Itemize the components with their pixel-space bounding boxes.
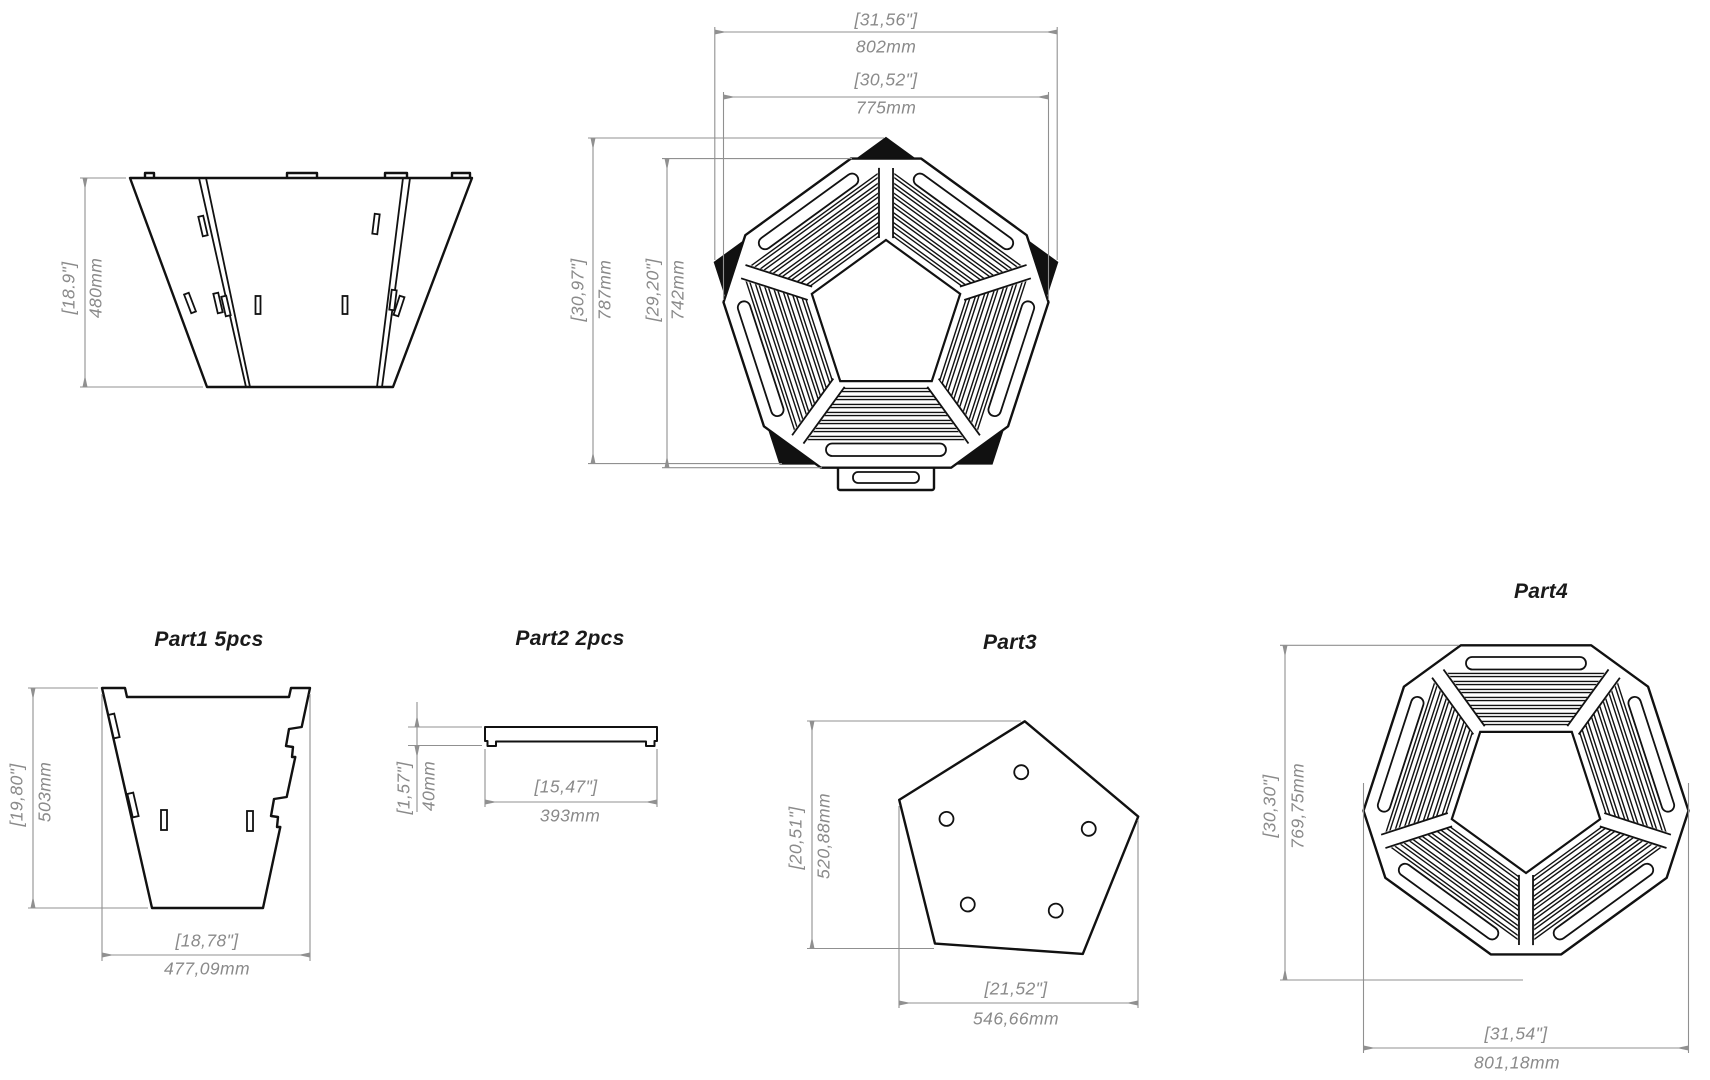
dim-topview-outer-width-inch: [31,56"] xyxy=(855,10,918,31)
dim-part4-height-mm: 769,75mm xyxy=(1288,763,1309,849)
part1-drawing xyxy=(102,688,310,908)
part2-label: Part2 2pcs xyxy=(515,627,624,651)
dim-sideview-height-mm: 480mm xyxy=(86,258,107,318)
dim-part2-height-mm: 40mm xyxy=(419,761,440,811)
technical-drawing-sheet: [31,56"] 802mm [30,52"] 775mm [30,97"] 7… xyxy=(0,0,1710,1080)
dim-topview-inner-width-inch: [30,52"] xyxy=(855,70,918,91)
part4-label: Part4 xyxy=(1514,580,1568,604)
dim-part3-width-inch: [21,52"] xyxy=(985,979,1048,1000)
dim-part4-width-inch: [31,54"] xyxy=(1485,1024,1548,1045)
dim-topview-inner-height-mm: 742mm xyxy=(668,260,689,320)
dim-part2-width-inch: [15,47"] xyxy=(535,777,598,798)
dim-part3-height-mm: 520,88mm xyxy=(814,793,835,879)
dim-part4-width-mm: 801,18mm xyxy=(1474,1053,1560,1074)
dim-sideview-height-inch: [18.9"] xyxy=(59,262,80,315)
part4-drawing xyxy=(1364,645,1689,962)
part3-label: Part3 xyxy=(983,631,1037,655)
side-view-drawing xyxy=(130,173,472,387)
dim-part1-height-mm: 503mm xyxy=(35,762,56,822)
dim-part1-height-inch: [19,80"] xyxy=(7,764,28,827)
dim-topview-outer-height-inch: [30,97"] xyxy=(568,259,589,322)
part3-drawing xyxy=(889,713,1144,957)
part1-label: Part1 5pcs xyxy=(154,628,263,652)
dim-part1-width-inch: [18,78"] xyxy=(176,931,239,952)
dim-part1-width-mm: 477,09mm xyxy=(164,959,250,980)
part2-drawing xyxy=(485,727,657,746)
dim-part2-width-mm: 393mm xyxy=(540,806,600,827)
dim-part3-width-mm: 546,66mm xyxy=(973,1009,1059,1030)
dim-part2-height-inch: [1,57"] xyxy=(394,762,415,815)
drawing-canvas xyxy=(0,0,1710,1080)
dim-topview-outer-width-mm: 802mm xyxy=(856,37,916,58)
top-view-drawing xyxy=(715,138,1057,490)
dim-topview-outer-height-mm: 787mm xyxy=(595,260,616,320)
dim-part3-height-inch: [20,51"] xyxy=(786,807,807,870)
dim-part4-height-inch: [30,30"] xyxy=(1260,775,1281,838)
dim-topview-inner-width-mm: 775mm xyxy=(856,98,916,119)
dim-topview-inner-height-inch: [29,20"] xyxy=(643,259,664,322)
